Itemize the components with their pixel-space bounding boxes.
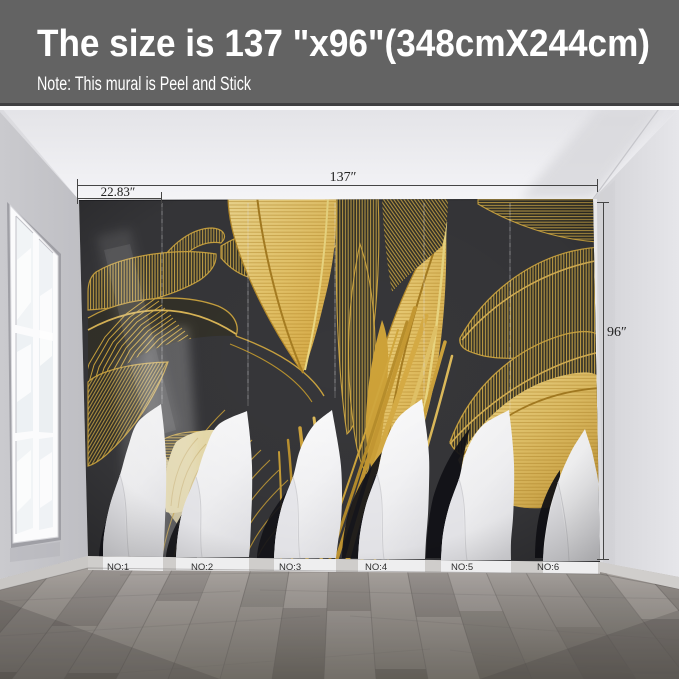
svg-text:22.83″: 22.83″ [101, 184, 136, 199]
svg-text:NO:5: NO:5 [451, 562, 473, 573]
svg-text:NO:2: NO:2 [191, 562, 213, 573]
svg-text:96″: 96″ [607, 325, 627, 340]
svg-text:NO:3: NO:3 [279, 562, 301, 573]
svg-text:The size is 137 "x96"(348cmX24: The size is 137 "x96"(348cmX244cm) [37, 23, 650, 65]
svg-text:NO:6: NO:6 [537, 562, 559, 573]
svg-text:NO:4: NO:4 [365, 562, 387, 573]
svg-text:NO:1: NO:1 [107, 562, 129, 573]
svg-text:Note: This mural is Peel and S: Note: This mural is Peel and Stick [37, 74, 251, 95]
svg-text:137″: 137″ [330, 170, 357, 185]
